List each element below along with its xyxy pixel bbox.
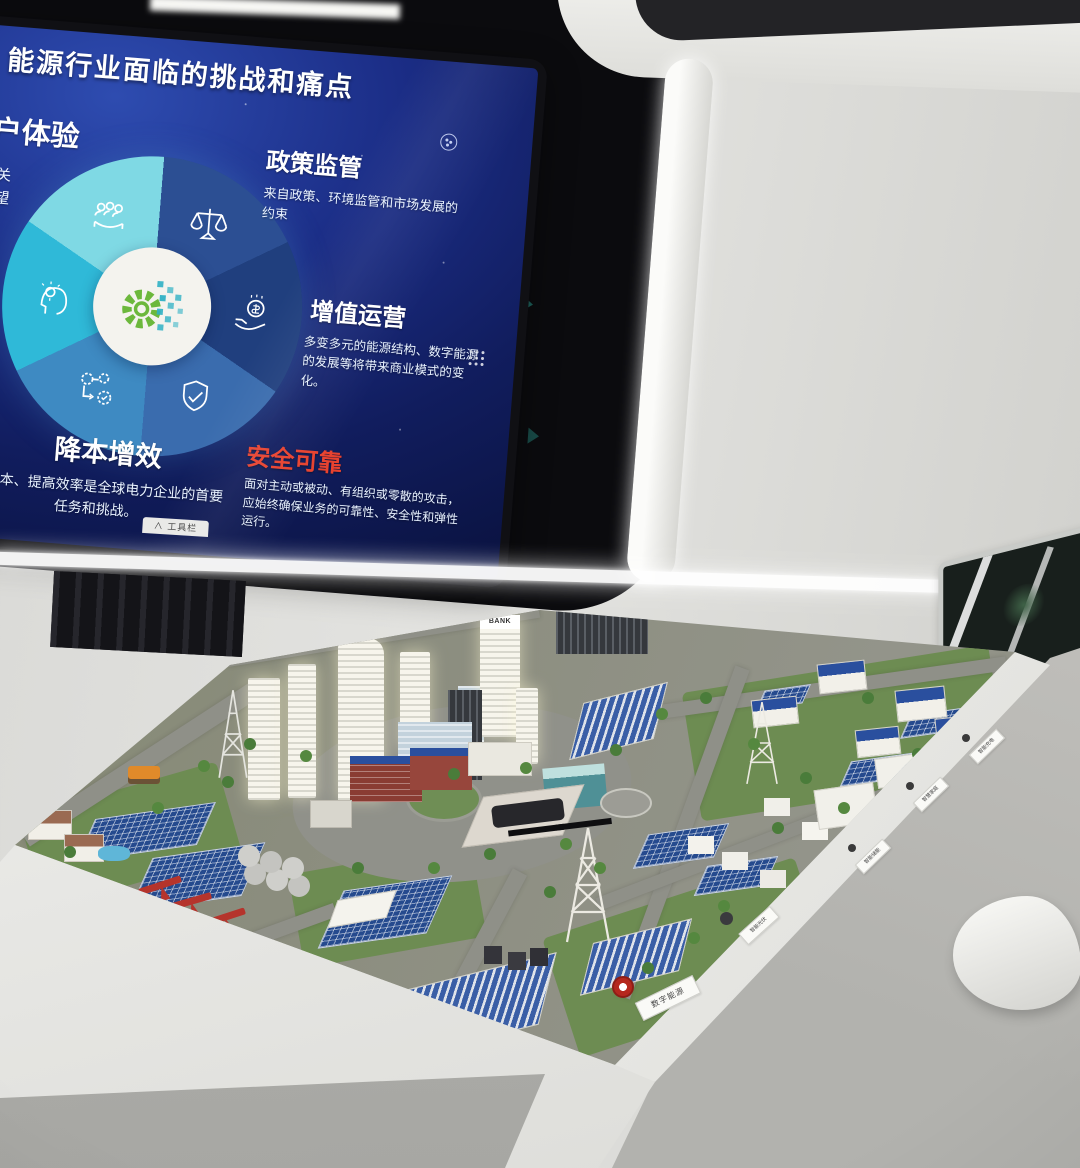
storage-tank-cluster — [238, 845, 260, 867]
low-commercial-building — [468, 742, 532, 776]
edge-label-logo — [848, 844, 856, 852]
presentation-display: 能源行业面临的挑战和痛点 — [0, 14, 548, 589]
back-recess — [50, 571, 246, 657]
transmission-tower — [556, 825, 620, 945]
bank-sign: BANK — [480, 615, 520, 629]
front-label-logo — [612, 976, 634, 998]
pv-villa — [855, 726, 902, 758]
transmission-tower — [740, 700, 784, 786]
white-container-units — [688, 836, 714, 854]
swimming-pool — [98, 846, 130, 861]
bank-tower: BANK — [480, 615, 520, 737]
excavator-vehicle — [128, 766, 160, 784]
doorway-chevron-logo — [527, 428, 539, 445]
helipad — [600, 788, 652, 818]
edge-label-logo — [720, 912, 733, 925]
house — [64, 834, 104, 862]
comm-tower — [210, 688, 256, 780]
skyscraper — [288, 664, 316, 798]
pv-villa — [817, 660, 868, 695]
dark-cube-buildings — [484, 946, 502, 964]
edge-label-logo — [906, 782, 914, 790]
edge-label-logo — [962, 734, 970, 742]
rooftop-solar — [410, 748, 472, 756]
screen-reflection — [0, 24, 538, 579]
pv-villa — [894, 685, 947, 722]
substation — [310, 800, 352, 828]
map-glow — [1001, 579, 1046, 631]
slide: 能源行业面临的挑战和痛点 — [0, 24, 538, 579]
brick-building — [410, 748, 472, 790]
